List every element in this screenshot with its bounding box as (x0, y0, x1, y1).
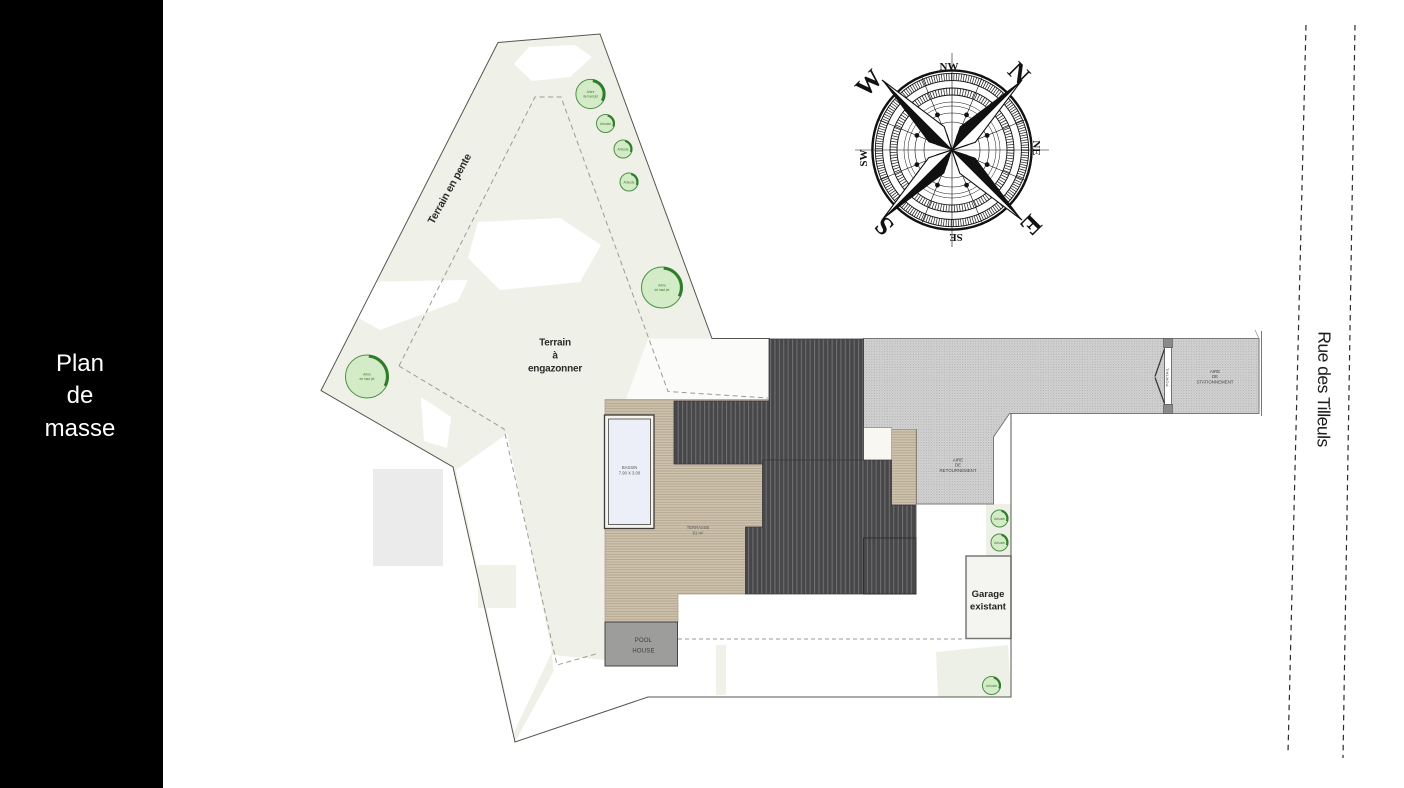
svg-text:masse: masse (45, 415, 116, 442)
svg-text:Arbuste: Arbuste (600, 122, 611, 126)
svg-text:engazonner: engazonner (528, 363, 582, 374)
svg-text:Arbuste: Arbuste (624, 181, 635, 185)
svg-text:de haut jet: de haut jet (583, 95, 598, 99)
svg-text:Garage: Garage (972, 589, 1005, 600)
svg-text:Arbre: Arbre (587, 90, 595, 94)
svg-text:Terrain: Terrain (539, 337, 571, 348)
svg-text:Arbre: Arbre (363, 373, 371, 377)
svg-text:RETOURNEMENT: RETOURNEMENT (940, 468, 977, 473)
svg-text:STATIONNEMENT: STATIONNEMENT (1197, 379, 1234, 384)
svg-text:91 m²: 91 m² (693, 531, 704, 536)
svg-text:Arbuste: Arbuste (994, 541, 1005, 545)
svg-text:à: à (552, 351, 558, 362)
svg-text:SW: SW (858, 149, 870, 166)
svg-text:BASSIN: BASSIN (622, 465, 637, 470)
svg-text:7.90 X 3.00: 7.90 X 3.00 (619, 471, 641, 476)
svg-text:PORTAIL: PORTAIL (1165, 367, 1170, 386)
svg-text:SE: SE (949, 231, 962, 243)
svg-text:NE: NE (1030, 140, 1042, 155)
svg-text:TERRASSE: TERRASSE (687, 525, 710, 530)
svg-text:Arbre: Arbre (658, 284, 666, 288)
svg-text:de haut jet: de haut jet (360, 377, 375, 381)
svg-text:Arbuste: Arbuste (618, 148, 629, 152)
svg-text:existant: existant (970, 602, 1007, 613)
svg-text:HOUSE: HOUSE (632, 649, 654, 655)
svg-text:Plan: Plan (56, 350, 104, 377)
svg-text:Arbuste: Arbuste (994, 517, 1005, 521)
svg-text:de haut jet: de haut jet (655, 288, 670, 292)
svg-text:Rue des Tilleuls: Rue des Tilleuls (1313, 331, 1334, 447)
svg-text:Arbuste: Arbuste (986, 684, 997, 688)
svg-text:POOL: POOL (635, 638, 653, 644)
svg-text:de: de (67, 382, 94, 409)
svg-text:NW: NW (940, 61, 959, 73)
